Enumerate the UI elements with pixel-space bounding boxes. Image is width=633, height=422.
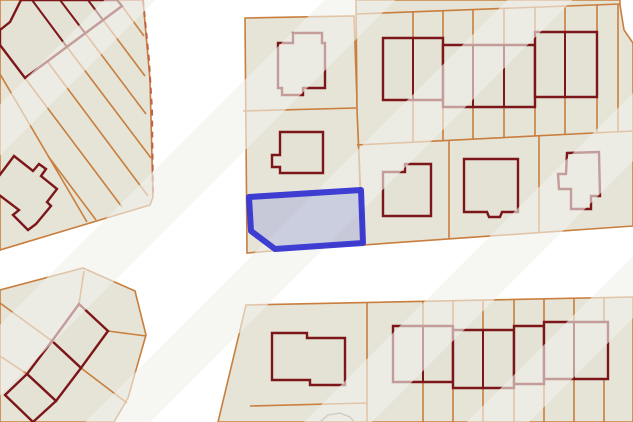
house-right-row2-2: [464, 159, 518, 217]
house-bottom-center: [272, 333, 345, 385]
highlight-layer: [249, 190, 363, 249]
map-canvas[interactable]: [0, 0, 633, 422]
map-viewport[interactable]: [0, 0, 633, 422]
selected-parcel[interactable]: [249, 190, 363, 249]
house-center-lower: [272, 132, 323, 173]
